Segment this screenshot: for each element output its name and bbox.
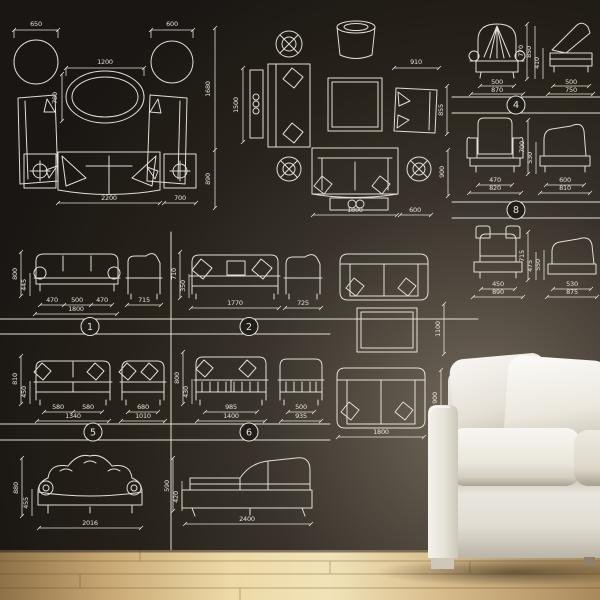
dim-label: 500 — [565, 78, 577, 86]
dim-label: 875 — [566, 288, 578, 296]
dim-label: 700 — [174, 194, 186, 202]
dim-label: 710 — [170, 268, 178, 280]
dim-label: 1800 — [373, 428, 389, 436]
dim-label: 475 — [526, 260, 534, 272]
scene-canvas: 650 600 1200 780 1680 890 2200 700 — [0, 0, 600, 600]
dim-label: 725 — [297, 299, 309, 307]
dim-label: 820 — [489, 184, 501, 192]
dim-label: 470 — [46, 296, 58, 304]
dim-label: 935 — [295, 412, 307, 420]
dim-label: 580 — [82, 403, 94, 411]
dim-label: 2400 — [239, 515, 255, 523]
dim-label: 455 — [22, 497, 30, 509]
dim-label: 680 — [137, 403, 149, 411]
dim-label: 580 — [52, 403, 64, 411]
dim-label: 600 — [409, 206, 421, 214]
dim-label: 1010 — [135, 412, 151, 420]
dim-label: 350 — [179, 280, 187, 292]
dim-label: 530 — [526, 152, 534, 164]
dim-label: 890 — [204, 173, 212, 185]
badge-label: 8 — [513, 205, 519, 216]
dim-label: 770 — [517, 45, 525, 57]
badge-label: 1 — [87, 322, 93, 333]
dim-label: 800 — [173, 372, 181, 384]
dim-label: 410 — [533, 57, 541, 69]
dim-label: 650 — [30, 20, 42, 28]
dim-label: 1770 — [227, 299, 243, 307]
dim-label: 420 — [172, 491, 180, 503]
sofa-armrest — [428, 405, 458, 558]
dim-label: 715 — [518, 250, 526, 262]
dim-label: 890 — [492, 288, 504, 296]
dim-label: 800 — [11, 268, 19, 280]
dim-label: 2016 — [82, 519, 98, 527]
dim-label: 470 — [489, 176, 501, 184]
dim-label: 850 — [525, 46, 533, 58]
dim-label: 855 — [437, 104, 445, 116]
dim-label: 1800 — [347, 206, 363, 214]
dim-label: 1400 — [223, 412, 239, 420]
dim-label: 1680 — [204, 81, 212, 97]
sofa-base — [450, 480, 600, 558]
dim-label: 430 — [182, 386, 190, 398]
dim-label: 900 — [438, 166, 446, 178]
dim-label: 1500 — [232, 97, 240, 113]
dim-label: 870 — [491, 86, 503, 94]
dim-label: 910 — [410, 58, 422, 66]
dim-label: 1800 — [68, 305, 84, 313]
dim-label: 2200 — [101, 194, 117, 202]
dim-label: 1200 — [97, 58, 113, 66]
sofa-seat-cushion — [574, 430, 600, 486]
dim-label: 1100 — [434, 321, 442, 337]
dim-label: 810 — [11, 373, 19, 385]
dim-label: 985 — [225, 403, 237, 411]
badge-label: 6 — [246, 428, 252, 439]
dim-label: 590 — [163, 480, 171, 492]
sofa-arm-foot — [431, 558, 454, 569]
dim-label: 470 — [96, 296, 108, 304]
dim-label: 500 — [71, 296, 83, 304]
dim-label: 450 — [492, 280, 504, 288]
dim-label: 700 — [518, 141, 526, 153]
dim-label: 780 — [51, 92, 59, 104]
dim-label: 810 — [559, 184, 571, 192]
dim-label: 550 — [534, 259, 542, 271]
dim-label: 530 — [566, 280, 578, 288]
dim-label: 450 — [20, 386, 28, 398]
white-sofa — [428, 352, 600, 570]
badge-label: 4 — [513, 100, 519, 111]
badge-label: 2 — [246, 322, 252, 333]
dim-label: 600 — [559, 176, 571, 184]
dim-label: 750 — [565, 86, 577, 94]
sofa-seat-cushion — [450, 428, 580, 486]
dim-label: 1340 — [65, 412, 81, 420]
dim-label: 900 — [431, 392, 439, 404]
dim-label: 715 — [138, 296, 150, 304]
dim-label: 500 — [295, 403, 307, 411]
dim-label: 500 — [491, 78, 503, 86]
dim-label: 880 — [12, 482, 20, 494]
sofa-leg — [584, 557, 595, 566]
dim-label: 445 — [20, 279, 28, 291]
dim-label: 600 — [166, 20, 178, 28]
photo-scene: 650 600 1200 780 1680 890 2200 700 — [0, 0, 600, 600]
badge-label: 5 — [90, 428, 96, 439]
